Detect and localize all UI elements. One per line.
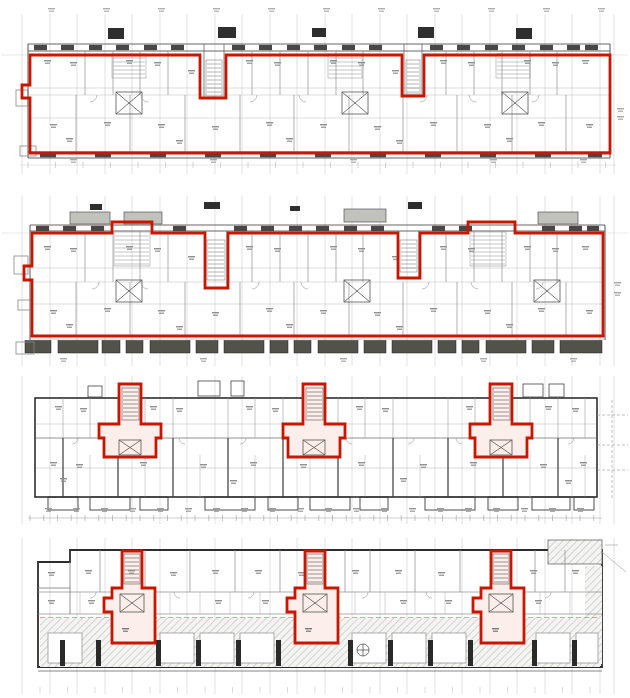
architectural-drawing-page <box>0 0 630 698</box>
floor-plans-canvas <box>0 0 630 698</box>
